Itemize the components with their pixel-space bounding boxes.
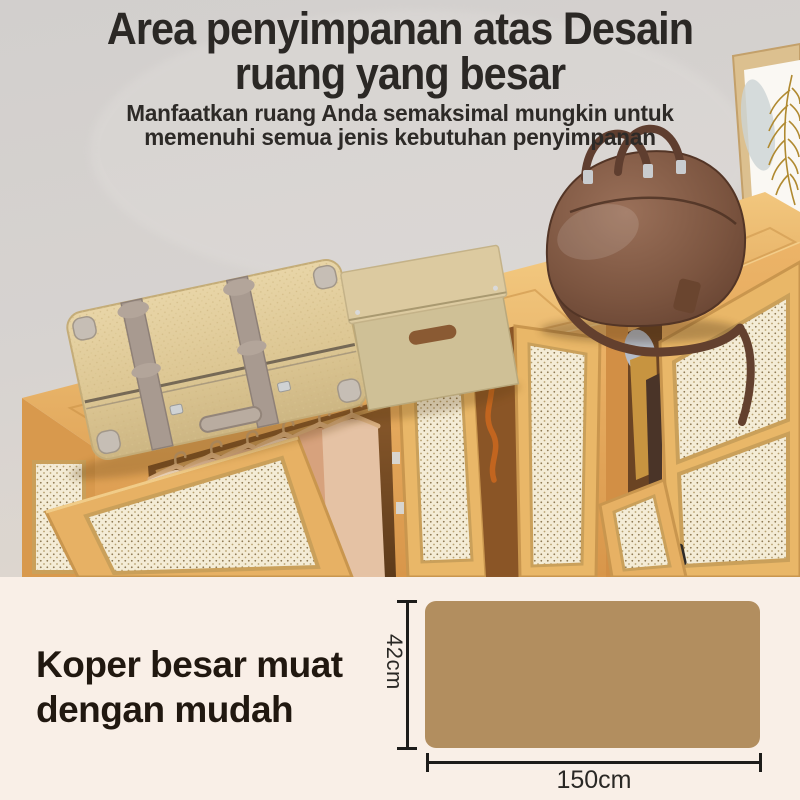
width-label: 150cm xyxy=(427,766,761,795)
height-dimension-cap-top xyxy=(397,600,417,603)
caption-line2: dengan mudah xyxy=(36,687,343,732)
product-marketing-image: Area penyimpanan atas Desain ruang yang … xyxy=(0,0,800,800)
headline-line2: ruang yang besar xyxy=(32,51,768,96)
caption-line1: Koper besar muat xyxy=(36,642,343,687)
lifestyle-photo: Area penyimpanan atas Desain ruang yang … xyxy=(0,0,800,577)
headline-line1: Area penyimpanan atas Desain xyxy=(32,6,768,51)
width-dimension-line xyxy=(427,761,761,764)
open-door-middle-2 xyxy=(515,326,600,577)
height-dimension-cap-bottom xyxy=(397,747,417,750)
subtitle-line1: Manfaatkan ruang Anda semaksimal mungkin… xyxy=(8,101,792,125)
caption: Koper besar muat dengan mudah xyxy=(36,642,343,732)
top-panel-shape xyxy=(425,601,760,748)
subtitle-line2: memenuhi semua jenis kebutuhan penyimpan… xyxy=(8,125,792,149)
headline: Area penyimpanan atas Desain ruang yang … xyxy=(0,6,800,149)
height-label: 42cm xyxy=(381,634,407,690)
